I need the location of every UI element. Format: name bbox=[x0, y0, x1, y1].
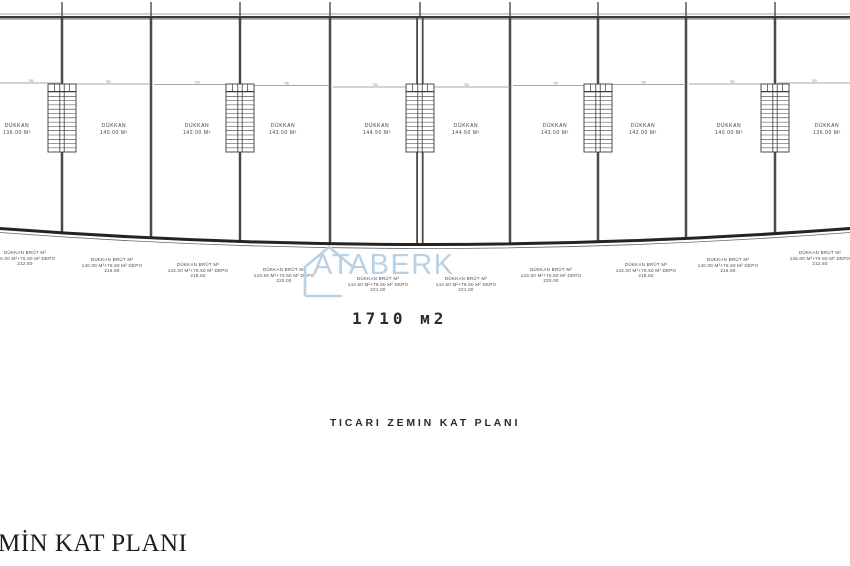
total-area-label: 1710 м2 bbox=[352, 309, 447, 328]
dimension-tick: 750 bbox=[641, 80, 647, 84]
watermark: ATABERK bbox=[296, 239, 466, 303]
dimension-tick: 750 bbox=[811, 79, 817, 83]
dimension-tick: 750 bbox=[553, 81, 559, 85]
dimension-tick: 750 bbox=[729, 80, 735, 84]
party-wall bbox=[329, 19, 332, 244]
dimension-tick: 750 bbox=[105, 80, 111, 84]
dimension-tick: 750 bbox=[194, 80, 200, 84]
plan-title: TICARI ZEMIN KAT PLANI bbox=[0, 417, 850, 429]
dimension-tick: 750 bbox=[28, 79, 34, 83]
party-wall bbox=[509, 19, 512, 244]
party-wall bbox=[685, 19, 688, 238]
dimension-tick: 750 bbox=[284, 81, 290, 85]
dimension-tick: 750 bbox=[464, 83, 470, 87]
floor-plan-canvas: 750750750750750750750750750750 DÜKKAN136… bbox=[0, 0, 850, 566]
bottom-caption: MİN KAT PLANI bbox=[0, 530, 187, 558]
party-wall bbox=[150, 19, 153, 238]
dimension-tick: 750 bbox=[372, 83, 378, 87]
rear-wall bbox=[0, 16, 850, 19]
watermark-text: ATABERK bbox=[313, 249, 455, 282]
